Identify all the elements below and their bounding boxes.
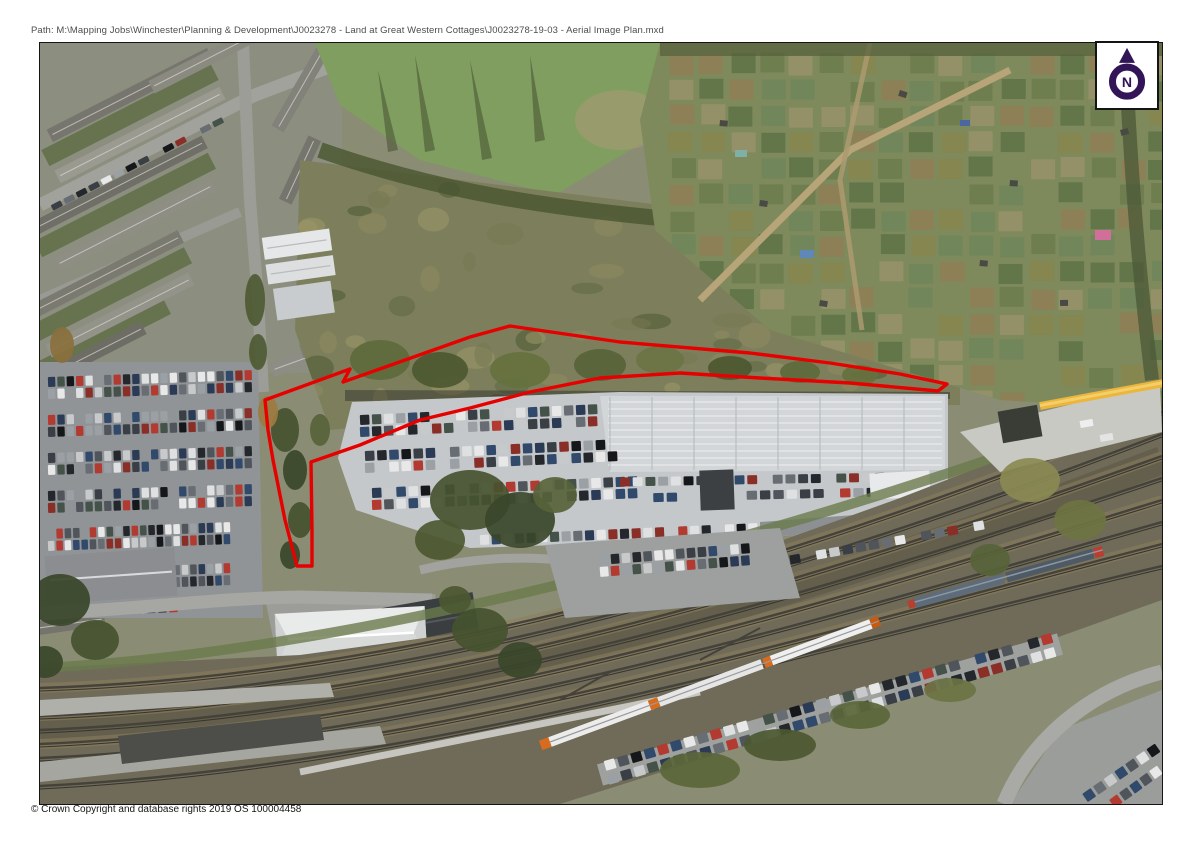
copyright-label: © Crown Copyright and database rights 20… xyxy=(31,804,301,815)
aerial-photo: N xyxy=(39,42,1163,805)
north-arrow-label: N xyxy=(1122,74,1132,90)
north-arrow: N xyxy=(1095,41,1159,110)
plan-page: { "page": { "path_label": "Path: M:\\Map… xyxy=(0,0,1200,847)
file-path-label: Path: M:\Mapping Jobs\Winchester\Plannin… xyxy=(31,25,664,36)
north-arrow-icon: N xyxy=(1097,43,1157,108)
aerial-photo-scene xyxy=(40,43,1162,804)
